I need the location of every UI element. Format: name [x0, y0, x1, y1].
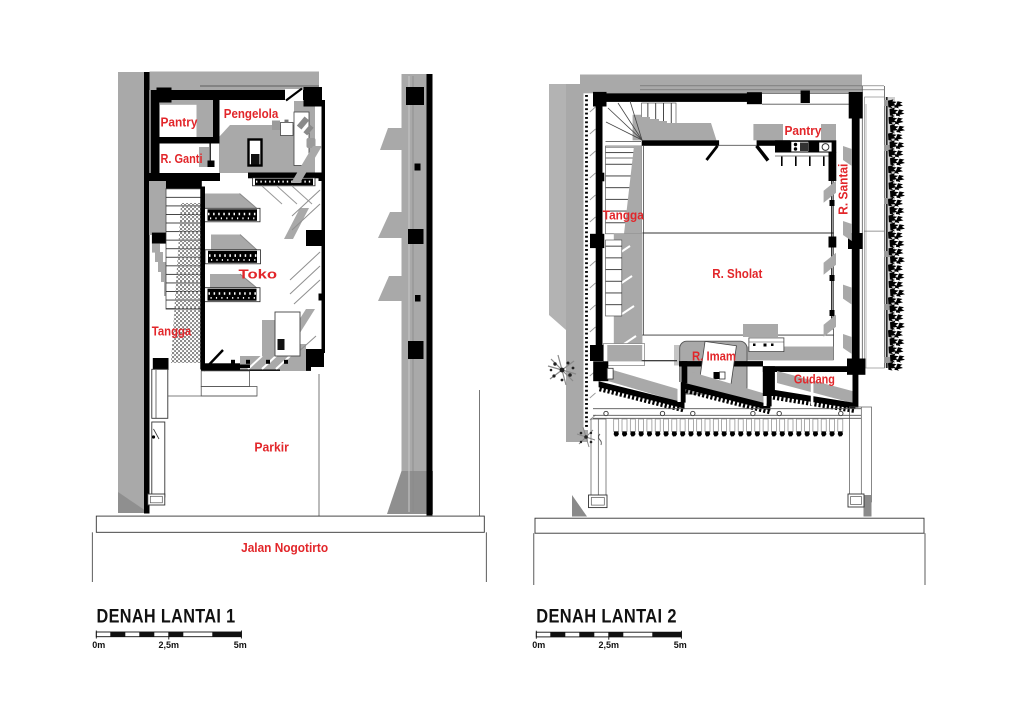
svg-text:R. Sholat: R. Sholat [712, 266, 763, 281]
svg-text:Pantry: Pantry [161, 115, 199, 130]
svg-text:Pengelola: Pengelola [224, 106, 279, 121]
svg-text:Gudang: Gudang [794, 372, 835, 387]
svg-text:Tangga: Tangga [603, 208, 645, 223]
svg-text:Parkir: Parkir [254, 440, 289, 455]
svg-text:Tangga: Tangga [152, 324, 192, 339]
svg-text:R. Imam: R. Imam [692, 348, 736, 363]
svg-text:Toko: Toko [239, 266, 278, 281]
svg-text:DENAH LANTAI 2: DENAH LANTAI 2 [536, 607, 677, 628]
svg-text:Jalan Nogotirto: Jalan Nogotirto [241, 540, 328, 555]
svg-text:R. Ganti: R. Ganti [161, 151, 203, 166]
svg-text:Pantry: Pantry [785, 123, 823, 138]
svg-text:DENAH LANTAI 1: DENAH LANTAI 1 [97, 607, 236, 628]
svg-text:R. Santai: R. Santai [835, 164, 850, 215]
